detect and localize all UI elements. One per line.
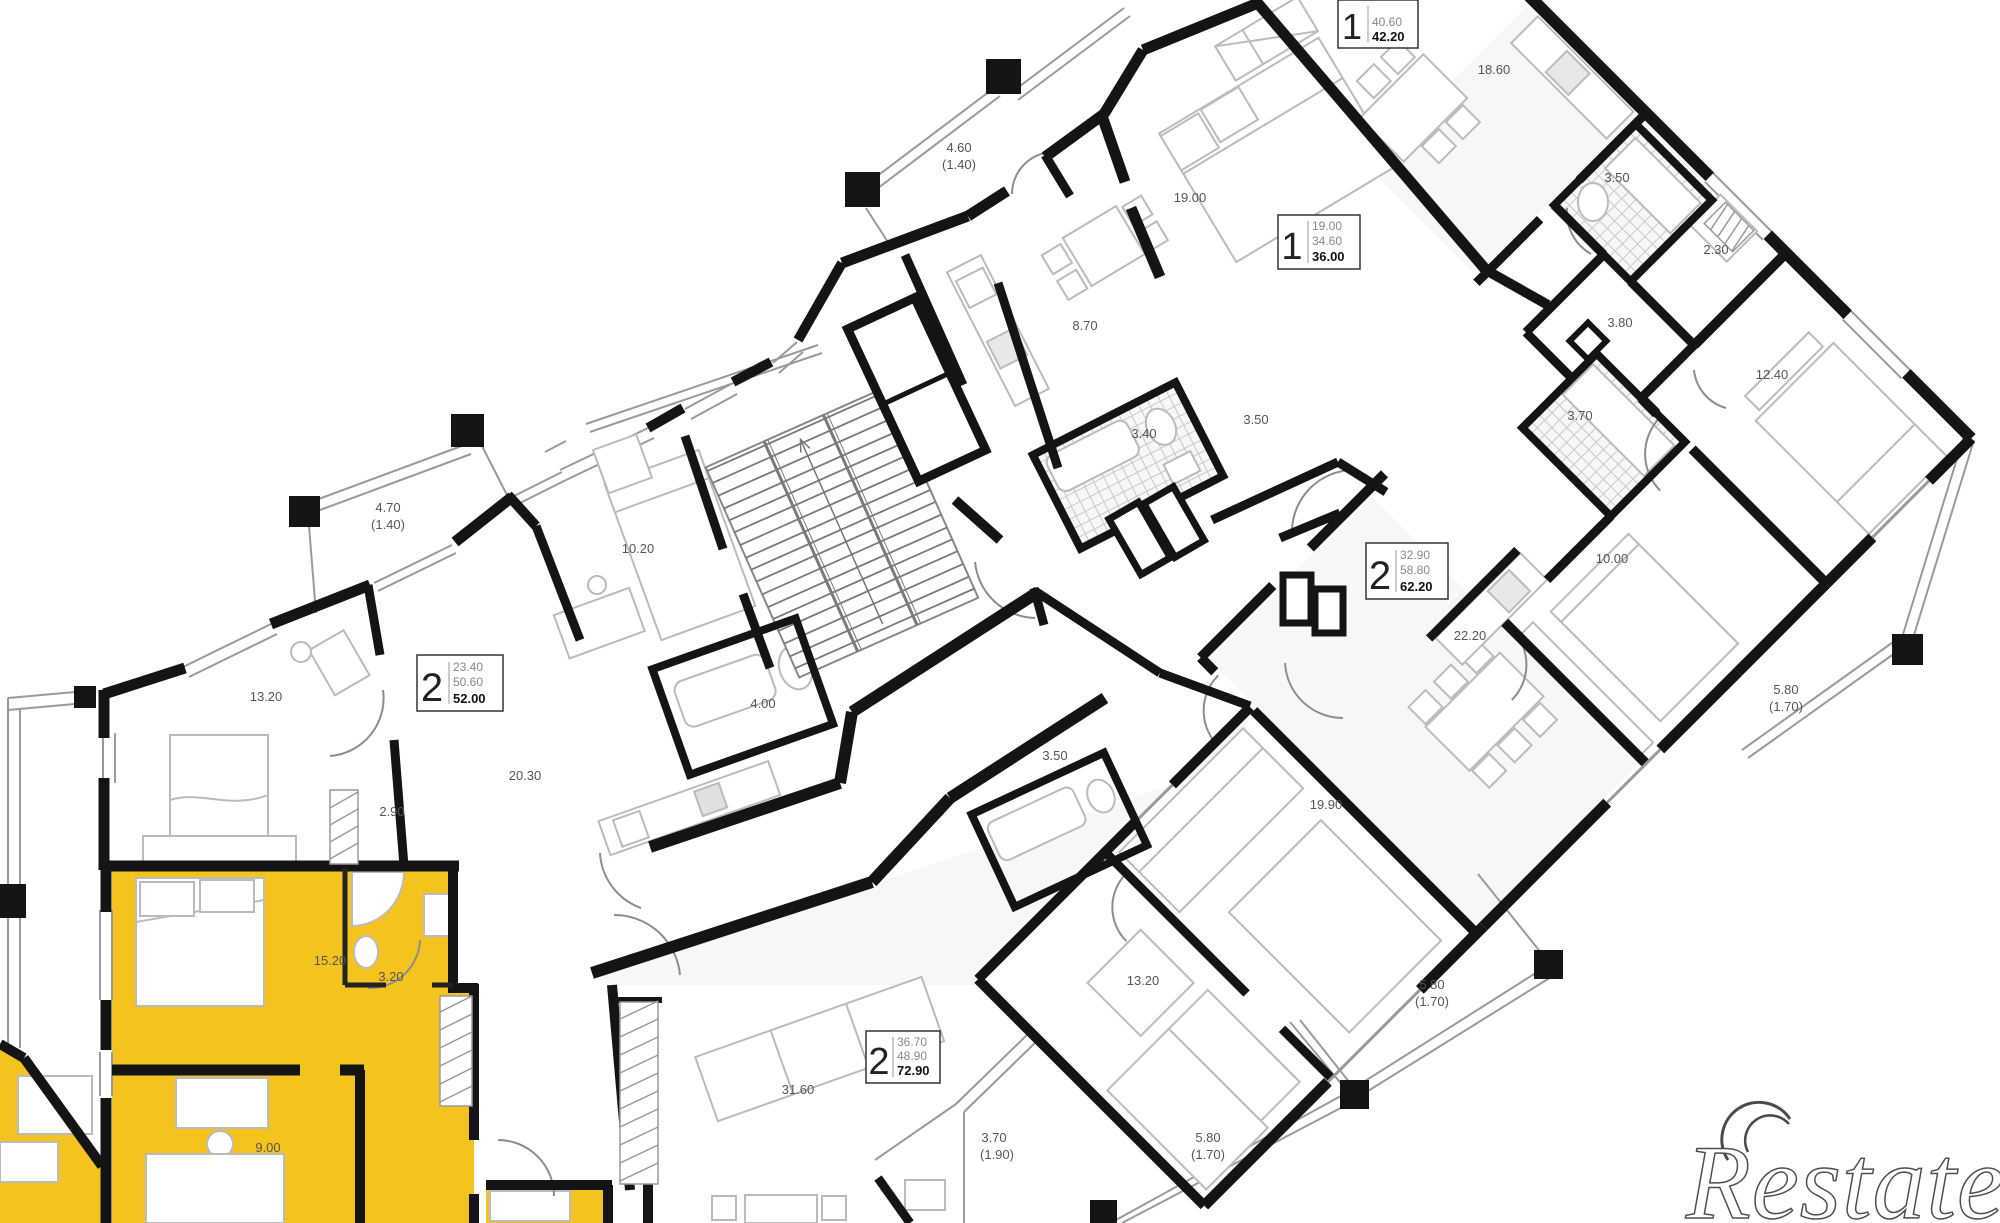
svg-text:50.60: 50.60: [453, 675, 483, 689]
svg-text:22.20: 22.20: [1454, 628, 1487, 643]
svg-text:42.20: 42.20: [1372, 29, 1405, 44]
svg-text:3.50: 3.50: [1042, 748, 1067, 763]
svg-text:18.60: 18.60: [1478, 62, 1511, 77]
svg-text:2: 2: [421, 666, 443, 710]
svg-text:58.80: 58.80: [1400, 563, 1430, 577]
svg-text:20.30: 20.30: [509, 768, 542, 783]
svg-text:2.30: 2.30: [1703, 242, 1728, 257]
svg-text:(1.70): (1.70): [1191, 1147, 1225, 1162]
svg-text:1: 1: [1281, 226, 1302, 268]
svg-text:10.00: 10.00: [1596, 551, 1629, 566]
svg-text:Restate: Restate: [1685, 1124, 2000, 1223]
svg-text:3.70: 3.70: [1567, 408, 1592, 423]
svg-text:(1.40): (1.40): [371, 517, 405, 532]
svg-text:(1.40): (1.40): [942, 157, 976, 172]
svg-text:9.00: 9.00: [255, 1140, 280, 1155]
svg-text:3.50: 3.50: [1243, 412, 1268, 427]
svg-text:1: 1: [1342, 6, 1362, 47]
svg-text:3.50: 3.50: [1604, 170, 1629, 185]
svg-text:(1.70): (1.70): [1415, 994, 1449, 1009]
svg-text:36.70: 36.70: [897, 1035, 927, 1049]
svg-text:2: 2: [868, 1041, 889, 1083]
svg-text:5.80: 5.80: [1195, 1130, 1220, 1145]
svg-text:3.70: 3.70: [981, 1130, 1006, 1145]
svg-text:8.70: 8.70: [1072, 318, 1097, 333]
svg-text:36.00: 36.00: [1312, 249, 1345, 264]
svg-text:10.20: 10.20: [622, 541, 655, 556]
svg-text:(1.90): (1.90): [980, 1147, 1014, 1162]
svg-text:19.90: 19.90: [1310, 797, 1343, 812]
svg-text:2.90: 2.90: [379, 804, 404, 819]
svg-text:19.00: 19.00: [1174, 190, 1207, 205]
svg-text:12.40: 12.40: [1756, 367, 1789, 382]
svg-text:4.00: 4.00: [750, 696, 775, 711]
svg-text:13.20: 13.20: [1127, 973, 1160, 988]
svg-text:(1.70): (1.70): [1769, 699, 1803, 714]
svg-text:52.00: 52.00: [453, 691, 486, 706]
svg-text:32.90: 32.90: [1400, 548, 1430, 562]
svg-text:4.60: 4.60: [946, 140, 971, 155]
svg-text:2: 2: [1369, 554, 1391, 598]
svg-text:5.80: 5.80: [1419, 977, 1444, 992]
svg-text:13.20: 13.20: [250, 689, 283, 704]
svg-text:31.60: 31.60: [782, 1082, 815, 1097]
svg-text:5.80: 5.80: [1773, 682, 1798, 697]
svg-text:3.20: 3.20: [378, 969, 403, 984]
svg-text:48.90: 48.90: [897, 1049, 927, 1063]
svg-text:4.70: 4.70: [375, 500, 400, 515]
svg-text:34.60: 34.60: [1312, 234, 1342, 248]
svg-text:62.20: 62.20: [1400, 579, 1433, 594]
svg-text:40.60: 40.60: [1372, 15, 1402, 29]
svg-text:3.80: 3.80: [1607, 315, 1632, 330]
svg-text:72.90: 72.90: [897, 1063, 930, 1078]
svg-text:23.40: 23.40: [453, 660, 483, 674]
svg-text:3.40: 3.40: [1131, 426, 1156, 441]
svg-text:15.20: 15.20: [314, 953, 347, 968]
svg-text:19.00: 19.00: [1312, 219, 1342, 233]
